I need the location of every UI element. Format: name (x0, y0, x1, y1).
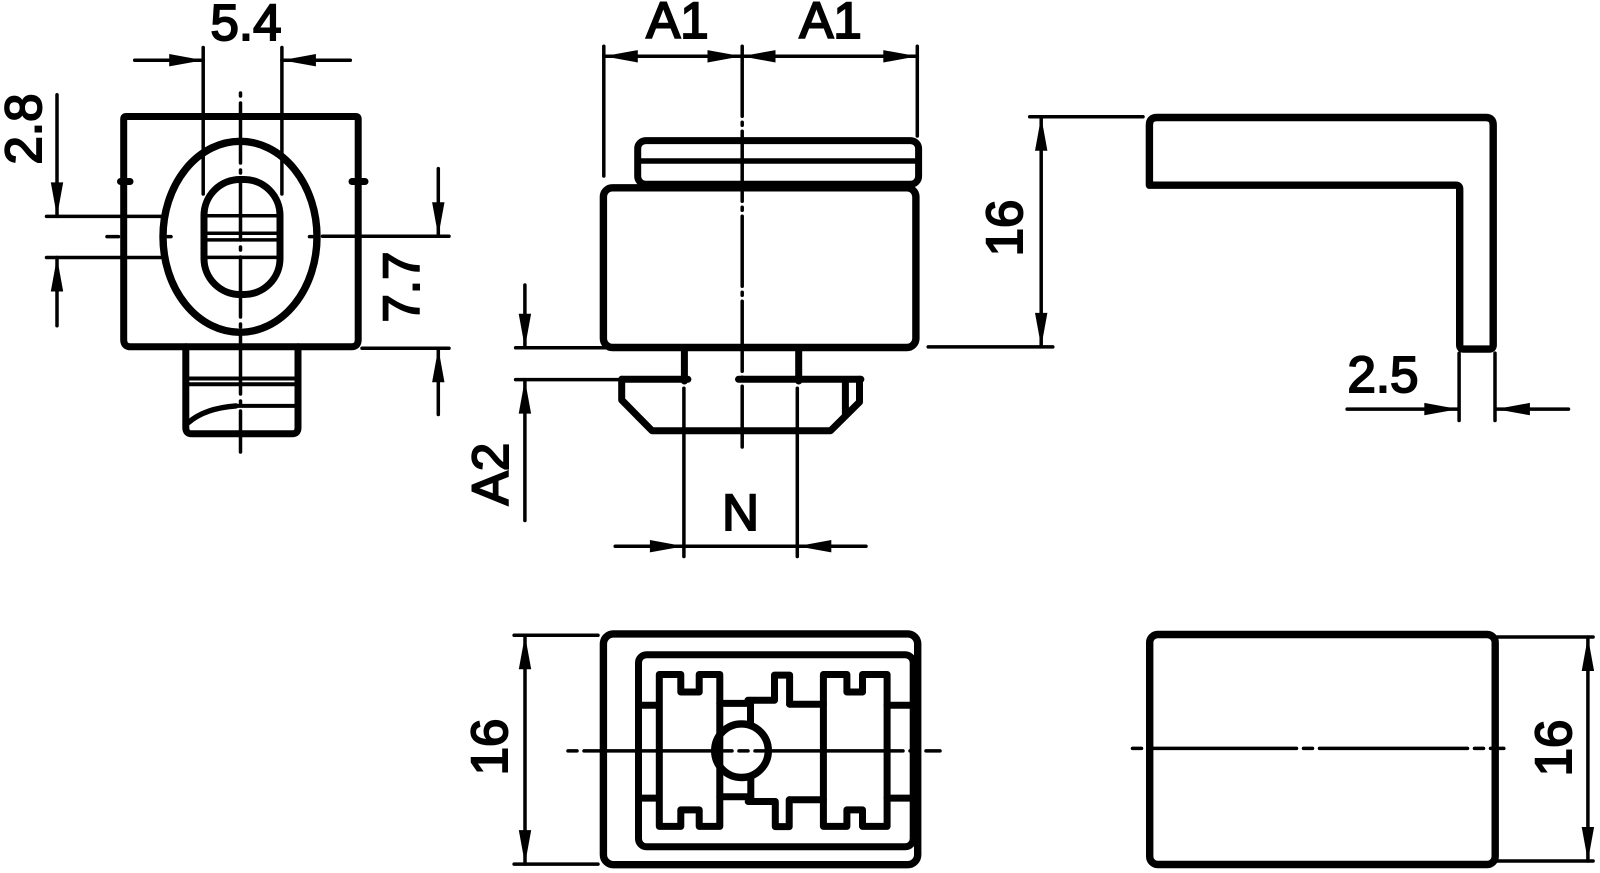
svg-text:16: 16 (976, 200, 1033, 257)
svg-text:A1: A1 (799, 0, 861, 49)
svg-text:2.5: 2.5 (1348, 346, 1419, 403)
svg-text:5.4: 5.4 (211, 0, 282, 51)
svg-text:16: 16 (461, 719, 518, 776)
svg-text:A2: A2 (462, 443, 519, 505)
svg-text:A1: A1 (646, 0, 708, 49)
svg-text:7.7: 7.7 (373, 252, 430, 323)
svg-text:2.8: 2.8 (0, 94, 52, 165)
svg-text:16: 16 (1525, 720, 1582, 777)
svg-text:N: N (722, 484, 759, 541)
